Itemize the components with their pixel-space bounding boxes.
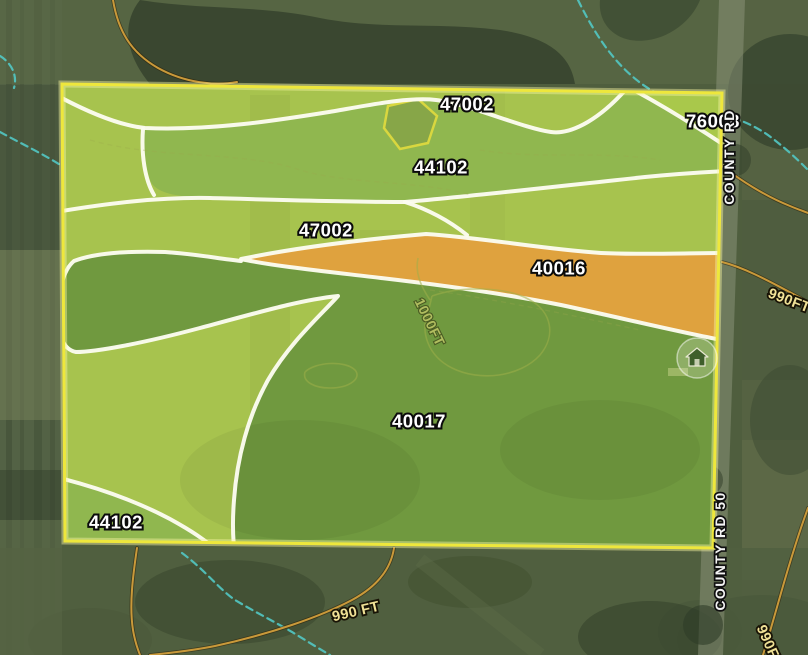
soil-code-label: 40016 xyxy=(532,258,586,279)
soil-code-label: 40017 xyxy=(392,411,446,432)
soil-code-label: 44102 xyxy=(89,512,143,533)
soil-code-label: 47002 xyxy=(440,94,494,115)
soil-code-label: 44102 xyxy=(414,157,468,178)
county-road-label: COUNTY RD xyxy=(721,109,737,205)
satellite-soil-map[interactable]: 47002 76008 44102 47002 40016 40017 4410… xyxy=(0,0,808,655)
county-road-label: COUNTY RD 50 xyxy=(712,491,728,610)
map-viewport[interactable]: 47002 76008 44102 47002 40016 40017 4410… xyxy=(0,0,808,655)
soil-code-label: 47002 xyxy=(299,220,353,241)
barn-home-marker-icon[interactable] xyxy=(677,338,717,378)
